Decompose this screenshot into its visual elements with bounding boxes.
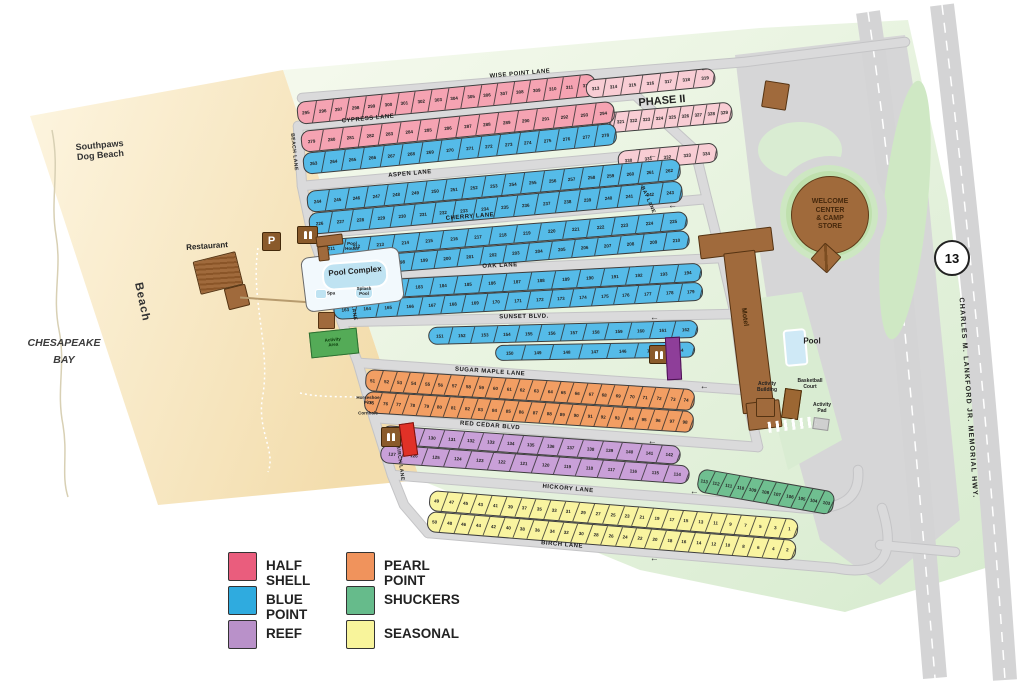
site-lot: 194 [674,264,702,283]
dog-beach-label: Southpaws Dog Beach [75,138,125,162]
legend-item-shuckers: SHUCKERS [346,586,464,616]
legend-swatch-half_shell [228,552,257,581]
pool-label: Pool [803,337,820,346]
legend-item-reef: REEF [228,620,346,650]
lane-direction-arrow: ← [668,200,678,211]
site-lot: 262 [658,159,682,181]
site-lot: 179 [678,283,703,301]
cornhole-label: Cornhole [358,411,378,416]
legend-label-half_shell: HALF SHELL [266,558,346,588]
restroom-icon [297,226,318,244]
spa-label: Spa [327,291,335,296]
welcome-center-building: WELCOME CENTER & CAMP STORE [791,176,869,254]
basketball-court-label: Basketball Court [797,378,822,390]
site-lot: 147 [579,344,611,359]
bathhouse-building [761,80,790,111]
lane-direction-arrow: ← [648,436,658,447]
horseshoe-pits-label: Horseshoe Pits [356,395,379,405]
legend-label-reef: REEF [266,626,302,641]
legend-swatch-seasonal [346,620,375,649]
welcome-center-label: WELCOME CENTER & CAMP STORE [812,198,849,232]
site-lot: 215 [416,231,444,250]
site-lot: 114 [664,465,691,483]
restroom-icon [381,427,401,447]
activity-pad-label: Activity Pad [813,402,831,414]
legend-item-seasonal: SEASONAL [346,620,464,650]
site-lot: 210 [664,231,690,250]
legend-swatch-blue_point [228,586,257,615]
activity-area-label: Activity Area [324,336,341,348]
motel-pool [782,328,808,367]
route-13-shield: 13 [934,240,970,276]
legend-item-pearl_point: PEARL POINT [346,552,464,582]
parking-icon: P [262,232,281,251]
campground-map: 2952962972982993003013023033043053063073… [0,0,1024,683]
legend: HALF SHELLBLUE POINTREEFPEARL POINTSHUCK… [228,552,508,662]
pool-house-building-wing [317,245,330,261]
site-lot: 225 [660,212,688,231]
chesapeake-bay-label: CHESAPEAKE BAY [28,335,101,369]
activity-area-icon [318,312,335,329]
lane-direction-arrow: ← [690,486,700,497]
site-lot: 334 [695,143,718,163]
site-lot: 142 [657,446,682,464]
sunset-blvd-label: SUNSET BLVD. [499,314,549,321]
site-lot: 162 [673,321,699,338]
purple-building [665,337,682,381]
legend-swatch-reef [228,620,257,649]
activity-building-icon [756,398,775,417]
lane-direction-arrow: ← [650,312,659,322]
legend-swatch-shuckers [346,586,375,615]
legend-label-seasonal: SEASONAL [384,626,459,641]
legend-label-pearl_point: PEARL POINT [384,558,464,588]
activity-building-label: Activity Building [757,381,777,393]
legend-label-blue_point: BLUE POINT [266,592,346,622]
pool-house-label: Pool House [345,241,359,251]
legend-swatch-pearl_point [346,552,375,581]
lane-direction-arrow: ← [700,63,710,74]
site-lot: 149 [523,345,555,360]
splash-pool-label: Splash Pool [357,286,372,296]
lane-direction-arrow: ← [648,150,658,161]
site-lot: 148 [551,344,583,359]
site-lot: 294 [592,102,615,124]
legend-item-half_shell: HALF SHELL [228,552,346,582]
spa-pool [315,289,327,299]
lane-direction-arrow: ← [700,381,710,392]
lane-direction-arrow: ← [650,553,660,564]
legend-item-blue_point: BLUE POINT [228,586,346,616]
site-lot: 278 [594,124,617,146]
legend-label-shuckers: SHUCKERS [384,592,460,607]
